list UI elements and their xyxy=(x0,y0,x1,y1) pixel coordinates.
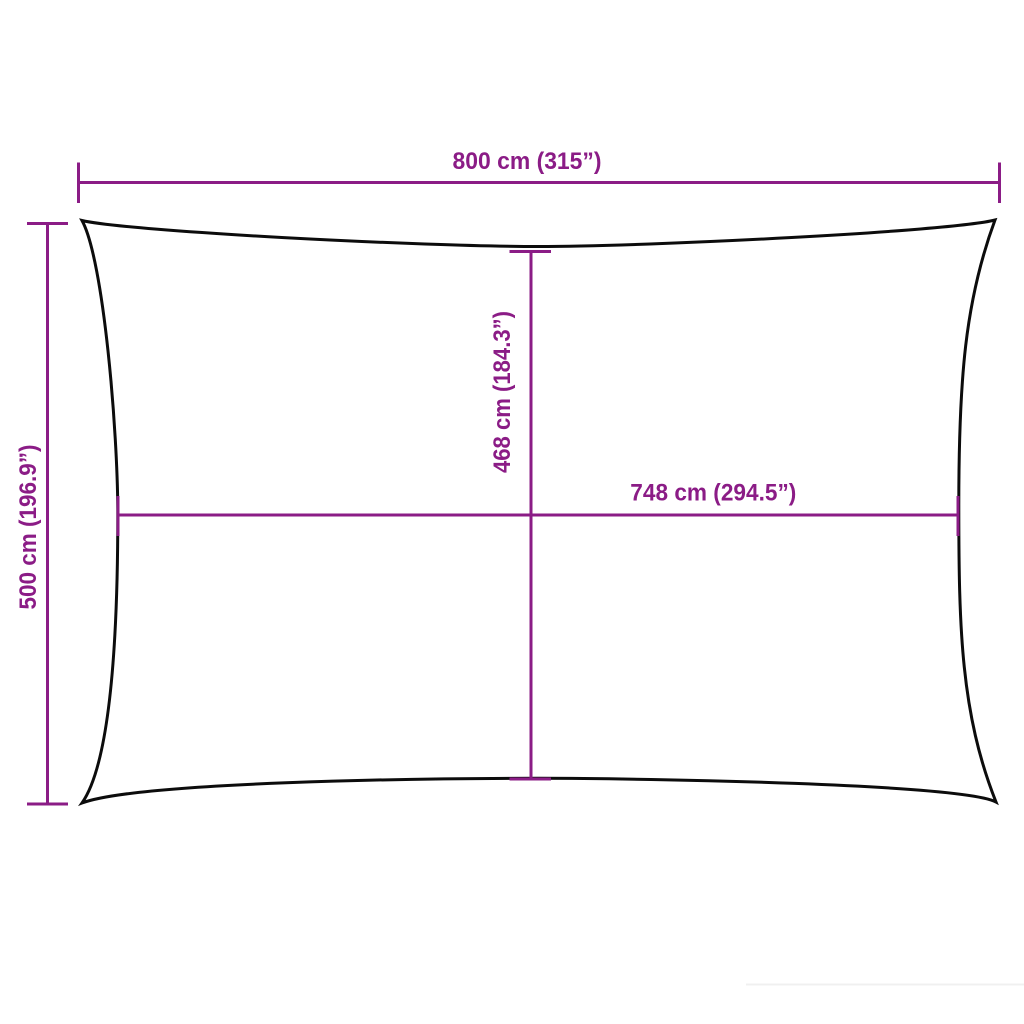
svg-text:468 cm (184.3”): 468 cm (184.3”) xyxy=(489,311,516,473)
svg-text:800 cm (315”): 800 cm (315”) xyxy=(453,148,602,175)
svg-text:500 cm (196.9”): 500 cm (196.9”) xyxy=(15,445,42,610)
svg-text:748 cm (294.5”): 748 cm (294.5”) xyxy=(630,480,796,507)
